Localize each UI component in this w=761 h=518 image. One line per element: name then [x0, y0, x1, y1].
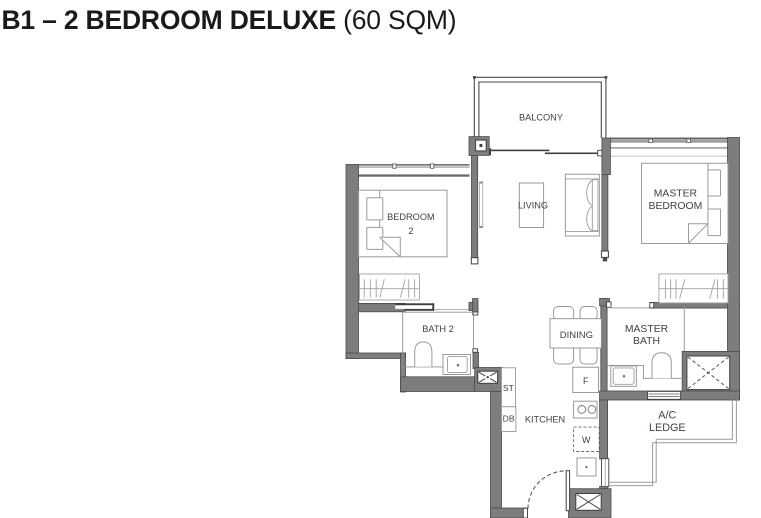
- svg-text:B1 – 2 BEDROOM DELUXE (60 SQM): B1 – 2 BEDROOM DELUXE (60 SQM): [2, 5, 457, 35]
- svg-text:BALCONY: BALCONY: [519, 113, 563, 123]
- svg-text:ST: ST: [503, 383, 515, 393]
- svg-text:LEDGE: LEDGE: [649, 422, 686, 434]
- svg-text:LIVING: LIVING: [518, 201, 548, 211]
- svg-text:DINING: DINING: [560, 330, 593, 341]
- svg-text:BATH: BATH: [633, 336, 660, 347]
- svg-text:DB: DB: [503, 414, 515, 424]
- svg-text:KITCHEN: KITCHEN: [525, 415, 565, 425]
- svg-text:BATH 2: BATH 2: [422, 324, 453, 334]
- svg-text:A/C: A/C: [658, 409, 676, 421]
- svg-text:W: W: [582, 435, 591, 445]
- svg-text:MASTER: MASTER: [654, 188, 698, 199]
- svg-text:F: F: [583, 376, 589, 386]
- svg-text:MASTER: MASTER: [625, 324, 669, 335]
- svg-text:2: 2: [408, 226, 413, 236]
- svg-text:BEDROOM: BEDROOM: [387, 212, 434, 222]
- svg-text:BEDROOM: BEDROOM: [649, 201, 703, 212]
